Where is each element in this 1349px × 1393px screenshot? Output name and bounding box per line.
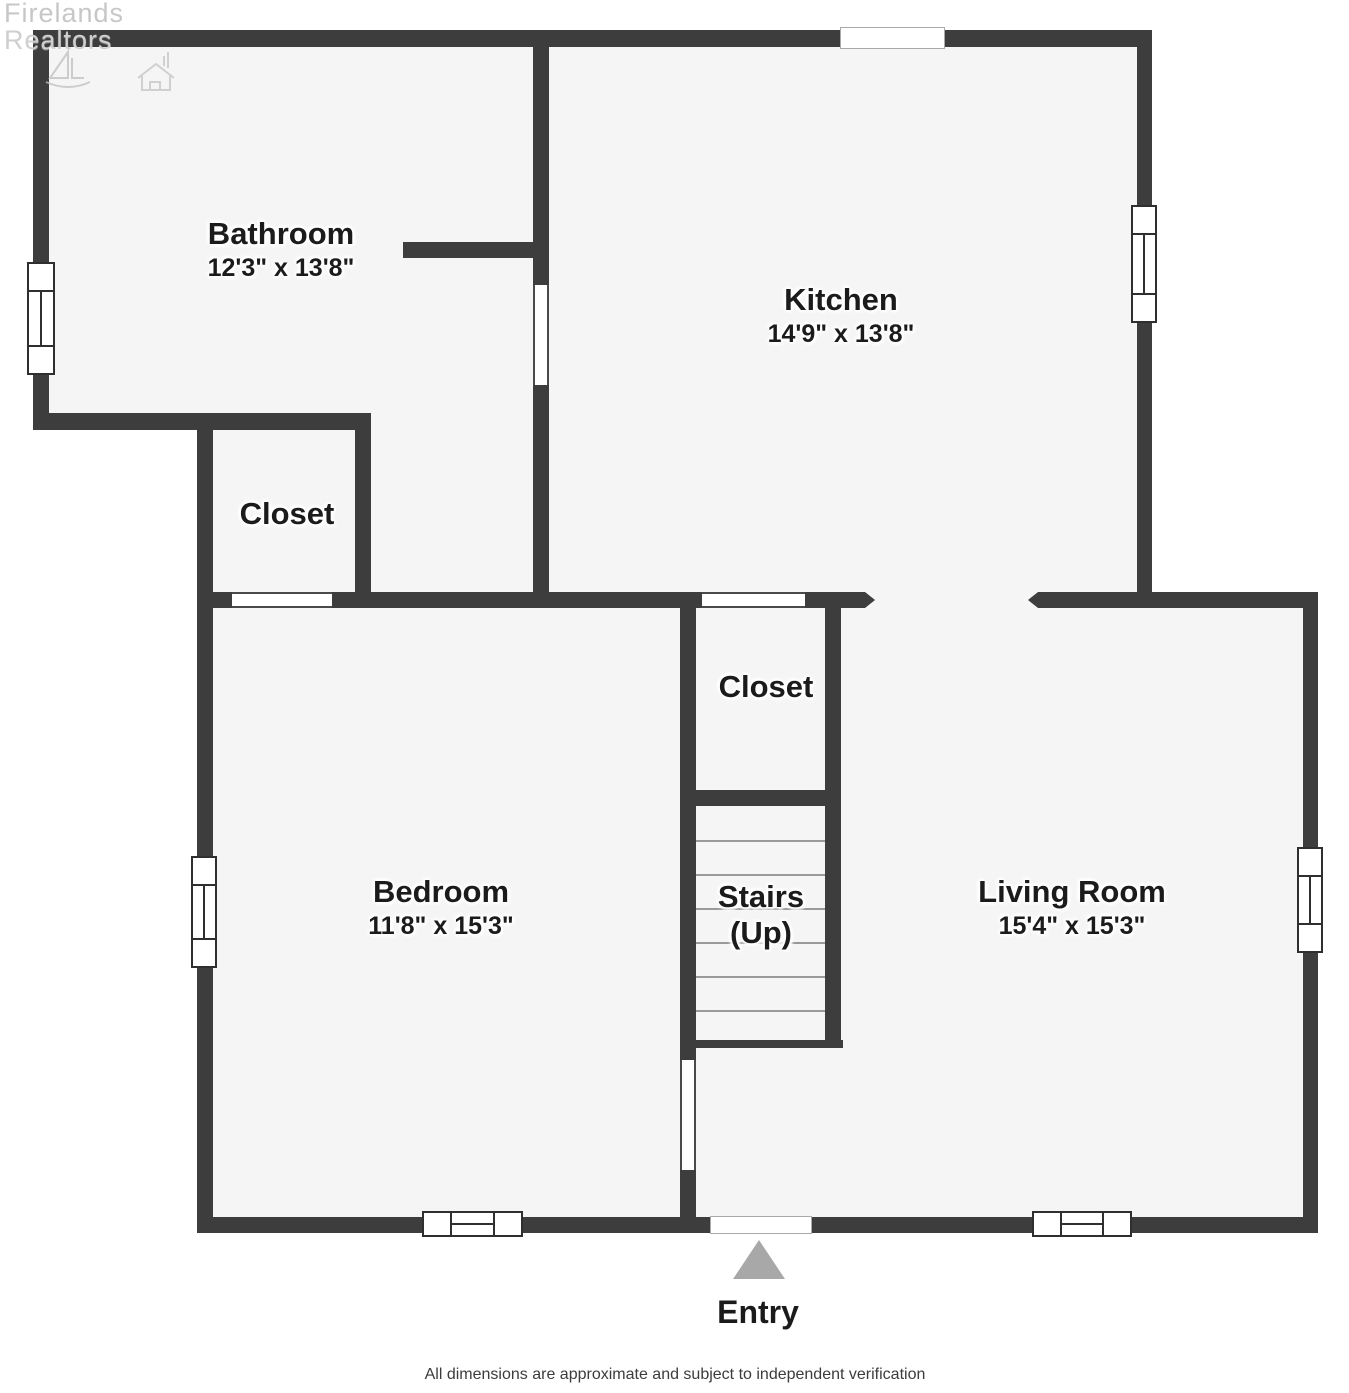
kitchen-name: Kitchen <box>768 282 915 318</box>
brand-line1: Firelands <box>4 0 124 27</box>
living-room-bottom-window <box>1032 1211 1132 1237</box>
stair-tread <box>696 840 825 842</box>
bathroom-window <box>27 262 55 375</box>
floor-plan: Bathroom 12'3" x 13'8" Kitchen 14'9" x 1… <box>0 0 1349 1393</box>
closet-upper-name: Closet <box>240 496 335 532</box>
wall-closet-lower-bottom <box>680 790 841 806</box>
house-icon <box>138 52 174 90</box>
disclaimer-text: All dimensions are approximate and subje… <box>425 1366 926 1384</box>
wall-stairs-column-right <box>825 592 841 1048</box>
living-room-name: Living Room <box>978 874 1166 910</box>
wall-top-exterior <box>33 30 1152 47</box>
stair-tread <box>696 976 825 978</box>
entry-door-opening <box>710 1216 812 1234</box>
entry-label: Entry <box>717 1294 799 1331</box>
wall-closet-upper-right <box>355 413 371 608</box>
wall-bathroom-stub <box>403 242 533 258</box>
kitchen-window <box>1131 205 1157 323</box>
living-room-side-window <box>1297 847 1323 953</box>
closet-upper-label: Closet <box>240 496 335 532</box>
entry-arrow-icon <box>733 1240 785 1279</box>
door-opening-closet-upper <box>232 592 332 608</box>
kitchen-dims: 14'9" x 13'8" <box>768 318 915 351</box>
closet-lower-label: Closet <box>719 669 814 705</box>
bedroom-dims: 11'8" x 15'3" <box>368 910 513 943</box>
door-opening-bathroom <box>533 285 549 385</box>
bathroom-name: Bathroom <box>208 216 355 252</box>
closet-lower-name: Closet <box>719 669 814 705</box>
brand-icons <box>38 48 188 96</box>
bedroom-label: Bedroom 11'8" x 15'3" <box>368 874 513 943</box>
wall-closet-upper-left <box>197 413 213 608</box>
bedroom-name: Bedroom <box>368 874 513 910</box>
bathroom-dims: 12'3" x 13'8" <box>208 252 355 285</box>
stair-tread <box>696 1010 825 1012</box>
living-room-dims: 15'4" x 15'3" <box>978 910 1166 943</box>
kitchen-top-opening <box>840 27 945 49</box>
brand-watermark: Firelands Realtors <box>4 0 124 54</box>
living-room-label: Living Room 15'4" x 15'3" <box>978 874 1166 943</box>
stairs-direction: (Up) <box>718 915 804 951</box>
bedroom-side-window <box>191 856 217 968</box>
wall-living-room-top <box>1028 592 1318 608</box>
stairs-name: Stairs <box>718 879 804 915</box>
wall-stairs-bottom <box>690 1040 843 1048</box>
stair-tread <box>696 874 825 876</box>
stairs-label: Stairs (Up) <box>718 879 804 951</box>
kitchen-label: Kitchen 14'9" x 13'8" <box>768 282 915 351</box>
bedroom-bottom-window <box>422 1211 523 1237</box>
sailboat-icon <box>46 52 90 87</box>
bathroom-label: Bathroom 12'3" x 13'8" <box>208 216 355 285</box>
door-opening-bedroom <box>680 1060 696 1170</box>
door-opening-closet-lower <box>702 592 805 608</box>
